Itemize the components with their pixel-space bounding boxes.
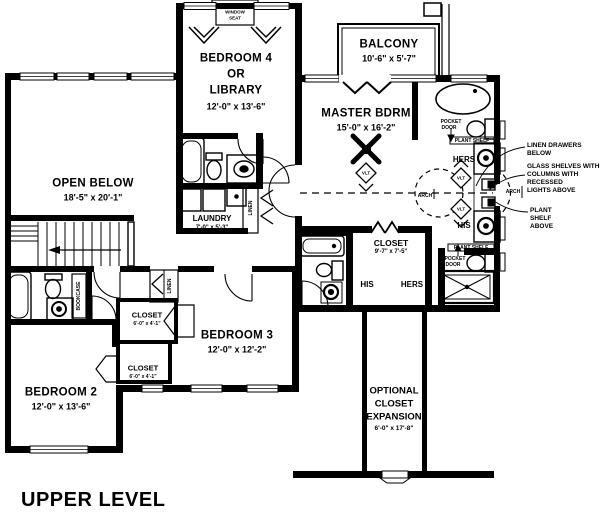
vlt-marker-label: VLT <box>457 207 465 212</box>
master-bedroom-dims: 15'-0" x 16'-2" <box>337 124 396 133</box>
master-closet-door <box>371 222 399 233</box>
soaking-tub <box>436 84 490 114</box>
bedroom3-closet-label: CLOSET <box>132 311 162 319</box>
window-seat-label: SEAT <box>229 16 241 21</box>
pocket-door-arrows <box>448 128 461 256</box>
optional-closet-label: CLOSET <box>375 399 414 409</box>
ceiling-fan-icon <box>353 136 379 162</box>
linen-drawers-note: BELOW <box>527 151 551 158</box>
master-closet-dims: 9'-7" x 7'-5" <box>375 249 408 255</box>
bookcase-label: BOOKCASE <box>77 282 82 311</box>
floorplan-linework <box>0 0 600 524</box>
plant-shelf-above-note: SHELF <box>530 216 551 223</box>
page-title: UPPER LEVEL <box>21 489 165 512</box>
window-seat-label: WINDOW <box>225 10 245 15</box>
bedroom3-dims: 12'-0" x 12'-2" <box>208 346 267 355</box>
bedroom3-door <box>225 274 252 301</box>
hall-bath-fixtures <box>179 138 261 185</box>
toilet-icon <box>485 253 495 272</box>
pocket-door-label: DOOR <box>442 126 457 131</box>
floor-plan: OPEN BELOW 18'-5" x 20'-1" BEDROOM 4 OR … <box>0 0 600 524</box>
bedroom4-label: OR <box>227 69 245 81</box>
laundry-label: LAUNDRY <box>193 215 232 223</box>
bedroom2-closet-dims: 6'-0" x 4'-1" <box>129 375 156 380</box>
laundry-appliances <box>179 187 246 211</box>
bedroom4-dims: 12'-0" x 13'-6" <box>207 103 266 112</box>
bath2-door <box>92 296 116 320</box>
glass-shelves-note: RECESSED <box>527 180 563 187</box>
optional-closet-label: EXPANSION <box>366 412 421 422</box>
bay-window-reveals <box>189 27 281 43</box>
laundry-dims: 7'-0" x 5'-3" <box>196 225 229 231</box>
open-below-dims: 18'-5" x 20'-1" <box>64 194 123 203</box>
master-double-door <box>269 165 295 217</box>
staircase <box>10 222 134 266</box>
glass-shelves-note: COLUMNS WITH <box>527 172 578 179</box>
vlt-marker-label: VLT <box>457 176 465 181</box>
toilet-icon <box>206 153 222 160</box>
linen-closet-label: LINEN <box>248 201 253 216</box>
ceiling-lines <box>300 164 522 222</box>
bifold-doors <box>152 190 399 294</box>
bath2-fixtures <box>6 272 73 321</box>
hers-vanity-label: HERS <box>453 156 475 164</box>
balcony-walls <box>338 24 439 78</box>
linen-bifold <box>261 190 273 224</box>
balcony-label: BALCONY <box>360 39 419 51</box>
bedroom4-label: LIBRARY <box>210 85 263 97</box>
plant-shelf-label: PLANT SHELF <box>455 138 489 143</box>
closet-his-label: HIS <box>360 281 373 289</box>
toilet-icon <box>485 119 495 139</box>
plant-shelf-label: PLANT SHELF <box>454 245 488 250</box>
pocket-door-label: POCKET <box>445 257 466 262</box>
pocket-door-label: DOOR <box>446 263 461 268</box>
open-below-label: OPEN BELOW <box>52 178 134 190</box>
bedroom3-label: BEDROOM 3 <box>201 330 273 342</box>
bedroom2-door <box>94 272 120 298</box>
bedroom2-label: BEDROOM 2 <box>25 387 97 399</box>
optional-closet-label: OPTIONAL <box>369 386 418 396</box>
balcony-door-gap <box>339 75 391 82</box>
his-vanity-label: HIS <box>457 222 470 230</box>
plant-shelf-above-note: ABOVE <box>530 224 553 231</box>
bath3-fixtures <box>300 236 344 303</box>
arch-label: ARCH <box>506 190 520 195</box>
dryer-icon <box>203 189 225 211</box>
stair-direction-arrow <box>48 246 60 254</box>
closet-hers-label: HERS <box>401 281 423 289</box>
bedroom2-dims: 12'-0" x 13'-6" <box>32 403 91 412</box>
optional-closet-dims: 6'-0" x 17'-8" <box>375 426 414 433</box>
vlt-marker-label: VLT <box>362 171 370 176</box>
balcony-dims: 10'-6" x 5'-7" <box>362 55 416 64</box>
expansion-door-sill <box>380 478 410 483</box>
glass-shelves-note: LIGHTS ABOVE <box>527 188 576 195</box>
plant-shelf-above-note: PLANT <box>530 208 552 215</box>
hall-bath-door <box>263 157 289 183</box>
bedroom4-label: BEDROOM 4 <box>200 53 272 65</box>
bedroom2-closet-label: CLOSET <box>128 364 158 372</box>
arch-label: ARCH <box>418 194 432 199</box>
glass-shelves-note: GLASS SHELVES WITHIN <box>527 164 600 171</box>
bedroom3-closet-dims: 6'-0" x 4'-1" <box>133 322 160 327</box>
master-bedroom-label: MASTER BDRM <box>321 108 411 120</box>
balcony-french-door <box>343 82 391 93</box>
linen-drawers-note: LINEN DRAWERS <box>527 143 582 150</box>
linen2-bifold <box>152 274 163 294</box>
chimney <box>424 3 449 75</box>
linen-closet-label: LINEN <box>168 279 173 294</box>
pocket-door-label: POCKET <box>441 120 462 125</box>
pedestal-sink <box>317 264 332 277</box>
master-closet-label: CLOSET <box>374 239 408 248</box>
